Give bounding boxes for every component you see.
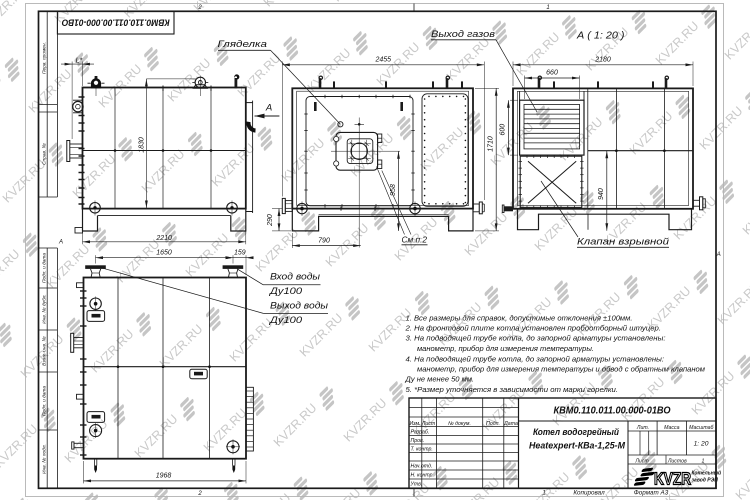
svg-text:Инв. № подл.: Инв. № подл.	[42, 444, 48, 474]
svg-text:1968: 1968	[156, 473, 172, 480]
svg-text:940: 940	[598, 188, 605, 200]
svg-text:Листов: Листов	[667, 459, 687, 465]
svg-text:2455: 2455	[375, 56, 392, 63]
svg-text:Ду100: Ду100	[269, 286, 303, 296]
svg-text:манометр, прибор для измерения: манометр, прибор для измерения температу…	[417, 365, 705, 374]
svg-text:КВМ0.110.011.00.000-01ВО: КВМ0.110.011.00.000-01ВО	[554, 406, 671, 417]
svg-text:Котельный: Котельный	[692, 470, 722, 477]
svg-text:А: А	[58, 240, 63, 246]
svg-text:Пров.: Пров.	[411, 438, 425, 444]
svg-text:Ду100: Ду100	[269, 315, 303, 325]
svg-text:1: 1	[546, 5, 549, 11]
svg-text:2180: 2180	[594, 56, 611, 63]
svg-text:Выход газов: Выход газов	[431, 29, 495, 39]
svg-text:Разраб.: Разраб.	[411, 429, 430, 435]
svg-text:3. На подводящей трубе котла,: 3. На подводящей трубе котла, до запорно…	[406, 334, 666, 343]
svg-text:Heatexpert-КВа-1,25-М: Heatexpert-КВа-1,25-М	[529, 441, 625, 451]
svg-text:Лит.: Лит.	[636, 425, 649, 431]
svg-text:Вход воды: Вход воды	[270, 272, 320, 282]
svg-text:Лист: Лист	[421, 421, 436, 427]
svg-text:600: 600	[500, 124, 507, 136]
svg-text:завод РЭП: завод РЭП	[692, 478, 719, 484]
svg-text:L*: L*	[76, 58, 83, 65]
svg-text:1650: 1650	[156, 249, 172, 256]
svg-text:Подп.: Подп.	[486, 421, 500, 427]
svg-text:790: 790	[318, 237, 330, 244]
svg-text:Формат А3: Формат А3	[634, 489, 669, 496]
svg-text:См.п.2: См.п.2	[402, 235, 428, 245]
svg-text:Масса: Масса	[664, 425, 679, 431]
svg-text:Гляделка: Гляделка	[218, 39, 268, 49]
svg-text:5. *Размер уточняется в зависи: 5. *Размер уточняется в зависимости от м…	[406, 385, 619, 394]
svg-text:2: 2	[197, 5, 202, 11]
svg-text:Утв.: Утв.	[411, 482, 423, 488]
svg-text:KVZR: KVZR	[654, 470, 691, 489]
svg-text:Н. контр.: Н. контр.	[411, 473, 434, 479]
svg-text:1710: 1710	[488, 136, 495, 152]
svg-text:Справ. №: Справ. №	[42, 143, 48, 165]
svg-text:А ( 1: 20 ): А ( 1: 20 )	[576, 31, 625, 42]
svg-text:Котел водогрейный: Котел водогрейный	[533, 427, 619, 437]
svg-text:Масштаб: Масштаб	[689, 425, 714, 431]
svg-text:1. Все размеры для справок, до: 1. Все размеры для справок, допустимые о…	[406, 313, 633, 322]
svg-text:1: 1	[702, 459, 705, 465]
svg-text:4. На подводящей трубе котла,: 4. На подводящей трубе котла, до запорно…	[406, 354, 665, 363]
svg-text:Перв. примен.: Перв. примен.	[42, 42, 48, 74]
svg-text:1: 20: 1: 20	[694, 440, 709, 447]
svg-text:660: 660	[546, 70, 558, 77]
svg-text:1830: 1830	[139, 137, 146, 153]
svg-text:Подп. и дата: Подп. и дата	[42, 386, 48, 416]
svg-text:1: 1	[542, 490, 545, 496]
svg-text:А: А	[716, 252, 721, 258]
svg-text:№ докум.: № докум.	[448, 421, 471, 427]
svg-text:159: 159	[234, 249, 246, 256]
svg-text:Нач.отд.: Нач.отд.	[411, 464, 433, 470]
svg-text:Т. контр.: Т. контр.	[411, 446, 433, 452]
svg-text:Подп. и дата: Подп. и дата	[42, 253, 48, 283]
svg-text:290: 290	[267, 214, 274, 227]
svg-text:2: 2	[197, 491, 202, 497]
svg-text:Ду не менее 50 мм.: Ду не менее 50 мм.	[404, 375, 474, 384]
svg-text:Копировал: Копировал	[573, 489, 605, 496]
svg-text:Инв. № дубл.: Инв. № дубл.	[42, 294, 48, 324]
svg-text:2. На фронтовой плите котла ус: 2. На фронтовой плите котла установлен п…	[404, 323, 661, 332]
svg-text:Изм.: Изм.	[409, 421, 420, 427]
svg-text:манометр, прибор для измерения: манометр, прибор для измерения температу…	[417, 344, 594, 353]
svg-text:Лист: Лист	[634, 459, 649, 465]
svg-text:Дата: Дата	[503, 421, 518, 427]
svg-text:А: А	[265, 103, 272, 114]
svg-text:Взам. инв. №: Взам. инв. №	[42, 336, 48, 366]
svg-text:2210: 2210	[155, 235, 172, 242]
svg-text:Выход воды: Выход воды	[270, 301, 328, 311]
svg-text:Клапан взрывной: Клапан взрывной	[577, 237, 669, 247]
svg-text:КВМ0.110.011.00.000-01ВО: КВМ0.110.011.00.000-01ВО	[62, 18, 170, 28]
